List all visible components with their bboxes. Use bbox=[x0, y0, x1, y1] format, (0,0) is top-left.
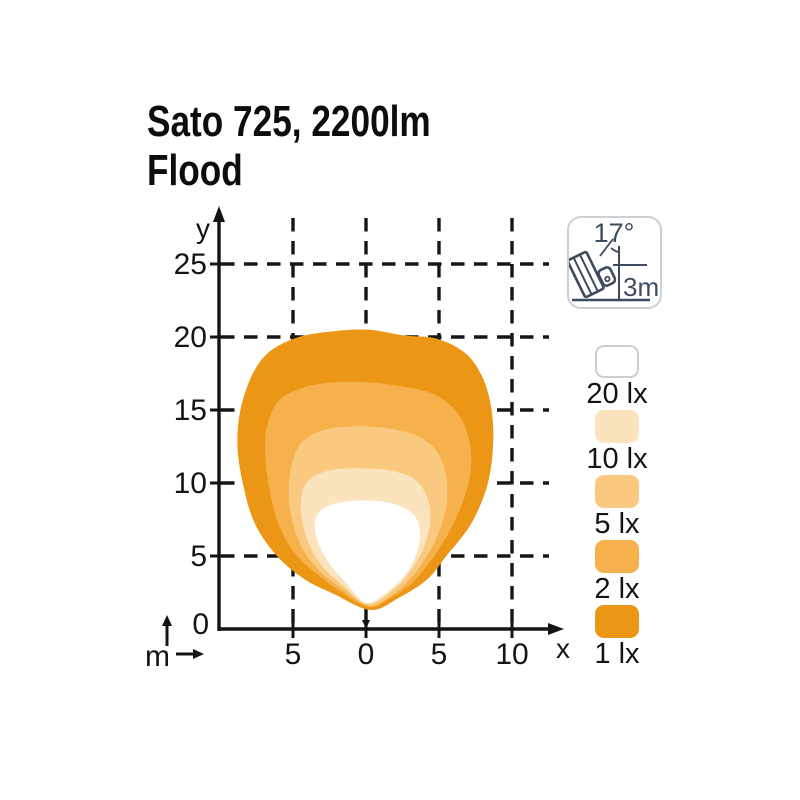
x-tick-label: 0 bbox=[358, 638, 375, 671]
origin-label: 0 bbox=[192, 608, 209, 641]
legend-label-1lx: 1 lx bbox=[594, 639, 639, 669]
x-tick-label: 5 bbox=[285, 638, 302, 671]
legend-item-1lx: 1 lx bbox=[573, 605, 661, 670]
lamp-position-marker bbox=[362, 611, 370, 629]
y-tick-label: 10 bbox=[174, 467, 207, 500]
angle-arc bbox=[611, 248, 619, 252]
y-axis-arrow bbox=[213, 206, 225, 222]
tilted-lamp-diagram: 17° 3m bbox=[569, 218, 659, 306]
legend-swatch-2lx bbox=[595, 540, 639, 573]
tilted-lamp-icon bbox=[569, 245, 617, 297]
x-tick-label: 5 bbox=[431, 638, 448, 671]
y-tick-label: 5 bbox=[190, 540, 207, 573]
legend-item-20lx: 20 lx bbox=[573, 345, 661, 410]
legend-swatch-1lx bbox=[595, 605, 639, 638]
mount-angle-box: 17° 3m bbox=[567, 216, 662, 309]
legend-label-2lx: 2 lx bbox=[594, 574, 639, 604]
y-tick-label: 15 bbox=[174, 394, 207, 427]
x-tick-label: 10 bbox=[495, 638, 528, 671]
x-axis-label: x bbox=[556, 633, 570, 664]
page: Sato 725, 2200lm Flood 50510510152025 y … bbox=[0, 0, 800, 800]
beam-legend: 20 lx 10 lx 5 lx 2 lx 1 lx bbox=[573, 345, 661, 670]
mount-height-value: 3m bbox=[623, 272, 659, 302]
legend-item-10lx: 10 lx bbox=[573, 410, 661, 475]
beam-lobes bbox=[237, 329, 493, 610]
unit-right-arrow bbox=[176, 649, 204, 659]
beam-pattern-chart: 50510510152025 y x 0 m bbox=[0, 0, 800, 800]
legend-label-20lx: 20 lx bbox=[586, 379, 647, 409]
legend-swatch-20lx bbox=[595, 345, 639, 378]
y-axis-label: y bbox=[196, 213, 210, 244]
legend-item-5lx: 5 lx bbox=[573, 475, 661, 540]
mount-angle-value: 17° bbox=[594, 218, 635, 248]
y-tick-label: 25 bbox=[174, 248, 207, 281]
legend-swatch-10lx bbox=[595, 410, 639, 443]
y-tick-label: 20 bbox=[174, 321, 207, 354]
legend-label-5lx: 5 lx bbox=[594, 509, 639, 539]
legend-item-2lx: 2 lx bbox=[573, 540, 661, 605]
legend-swatch-5lx bbox=[595, 475, 639, 508]
legend-label-10lx: 10 lx bbox=[586, 444, 647, 474]
